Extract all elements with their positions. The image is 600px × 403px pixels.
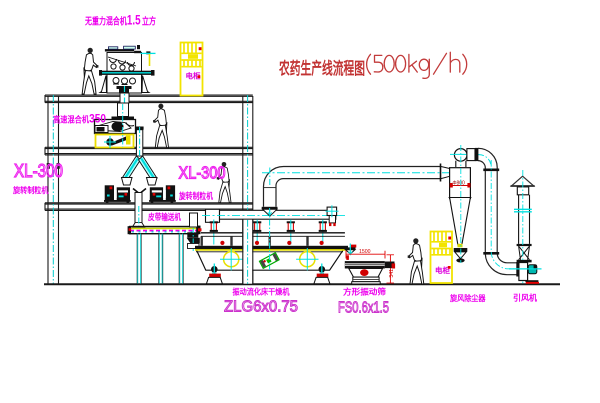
svg-text:旋转制粒机: 旋转制粒机 <box>178 191 213 201</box>
svg-text:1500: 1500 <box>359 249 371 255</box>
svg-text:旋风除尘器: 旋风除尘器 <box>449 293 486 303</box>
svg-text:FS0.6x1.5: FS0.6x1.5 <box>338 300 389 317</box>
svg-text:旋转制粒机: 旋转制粒机 <box>12 185 48 195</box>
svg-text:高速混合机350: 高速混合机350 <box>53 112 106 126</box>
svg-text:XL-300: XL-300 <box>179 163 226 183</box>
svg-text:341: 341 <box>389 269 395 278</box>
svg-text:方形振动筛: 方形振动筛 <box>343 287 386 297</box>
svg-text:振动流化床干燥机: 振动流化床干燥机 <box>233 287 290 297</box>
svg-text:ZLG6x0.75: ZLG6x0.75 <box>224 299 298 316</box>
svg-text:Φ800: Φ800 <box>453 181 466 187</box>
svg-text:农药生产线流程图: 农药生产线流程图 <box>278 58 365 78</box>
svg-text:XL-300: XL-300 <box>14 161 63 181</box>
svg-text:引风机: 引风机 <box>513 293 537 303</box>
svg-text:皮带输送机: 皮带输送机 <box>147 212 181 222</box>
